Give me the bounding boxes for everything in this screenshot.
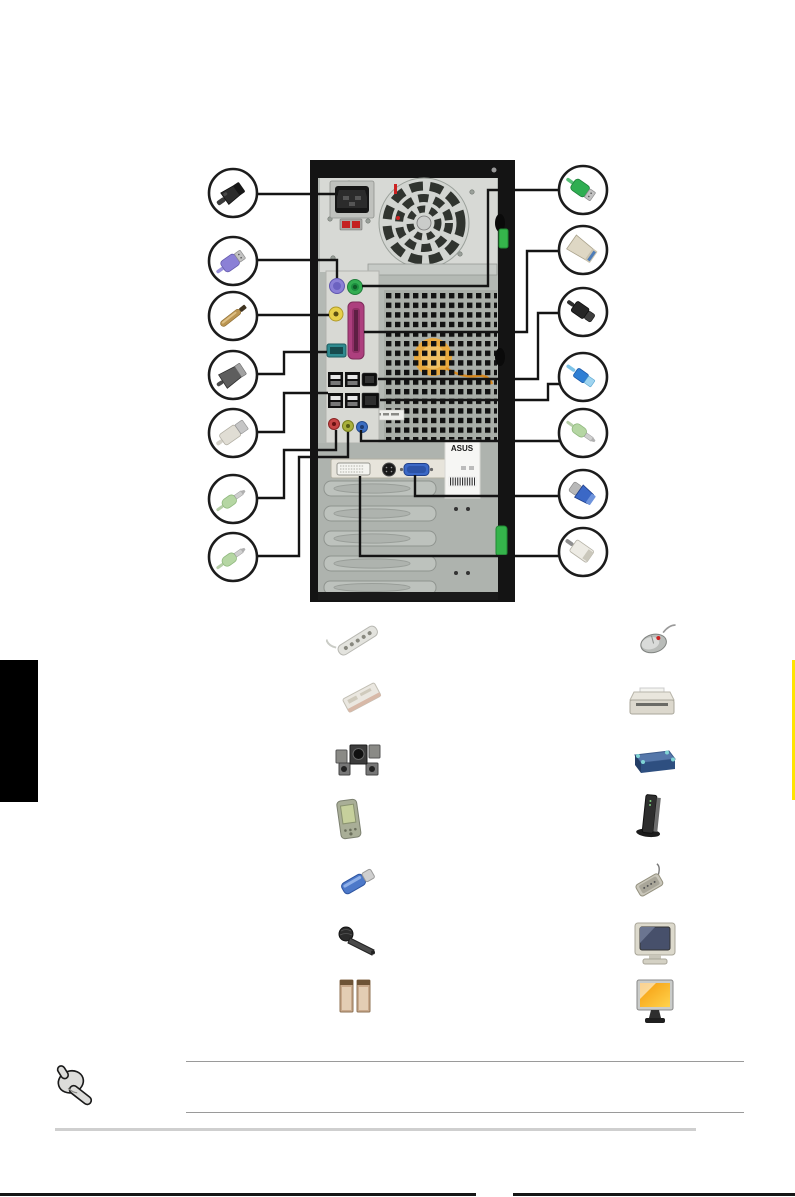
callout-ieee1394-plug: [559, 288, 607, 336]
peripheral-crt-monitor: [623, 913, 687, 969]
rear-panel-diagram: ASUS: [0, 0, 795, 620]
peripheral-power-strip: [326, 613, 390, 669]
peripheral-portable-media-device: [618, 856, 682, 912]
callout-serial-db9-plug: [209, 351, 257, 399]
callout-audio-jack-plug-3: [559, 409, 607, 457]
peripheral-modem-card: [330, 670, 394, 726]
peripheral-surround-speaker-set: [326, 730, 390, 786]
callouts-left: [209, 169, 257, 581]
callout-ps2-keyboard-plug: [209, 237, 257, 285]
peripheral-usb-flash-drive: [325, 854, 389, 910]
peripheral-microphone: [328, 912, 392, 968]
asus-sticker: ASUS: [445, 440, 480, 498]
io-port-panel: [326, 271, 379, 443]
asus-sticker-text: ASUS: [451, 444, 474, 453]
expansion-area: ASUS: [318, 440, 498, 594]
cropped-text-line-right: [513, 1193, 795, 1196]
s-video-port: [383, 463, 396, 476]
callouts-right: [559, 166, 607, 576]
callout-parallel-plug: [559, 226, 607, 274]
callout-power-cord-plug: [209, 169, 257, 217]
peripheral-external-drive: [621, 733, 685, 789]
callout-ps2-mouse-plug: [559, 166, 607, 214]
psu-vent-slot: [368, 264, 497, 275]
callout-usb-plug-left: [209, 409, 257, 457]
peripheral-modem-router: [618, 787, 682, 843]
psu-fan: [379, 178, 469, 268]
callout-coaxial-spdif-plug: [209, 292, 257, 340]
peripheral-printer: [620, 670, 684, 726]
power-supply-area: [320, 178, 497, 275]
callout-audio-jack-plug-1: [209, 475, 257, 523]
pointing-hand-icon: [50, 1062, 108, 1118]
peripheral-lcd-monitor: [623, 972, 687, 1028]
case-clip-top: [499, 229, 508, 248]
note-rule-bottom: [186, 1112, 744, 1113]
callout-usb-plug-right: [559, 353, 607, 401]
case-clip-bottom: [496, 526, 507, 556]
note-rule-top: [186, 1061, 744, 1062]
callout-dvi-plug: [559, 528, 607, 576]
cropped-text-line-left: [0, 1193, 476, 1196]
callout-audio-jack-plug-2: [209, 533, 257, 581]
chassis-vent-grid: [374, 290, 497, 441]
chapter-tab: [0, 660, 38, 802]
peripheral-mouse: [623, 613, 687, 669]
usb-ports-row2: [328, 393, 379, 408]
usb-ports-row1: [328, 372, 377, 387]
footer-rule: [55, 1128, 696, 1131]
manual-page: ASUS: [0, 0, 795, 1197]
tower-rear-view: ASUS: [310, 160, 515, 602]
callout-vga-plug: [559, 470, 607, 518]
peripheral-pda: [317, 792, 381, 848]
note-text: [200, 1070, 730, 1106]
peripheral-stereo-speakers: [324, 968, 388, 1024]
